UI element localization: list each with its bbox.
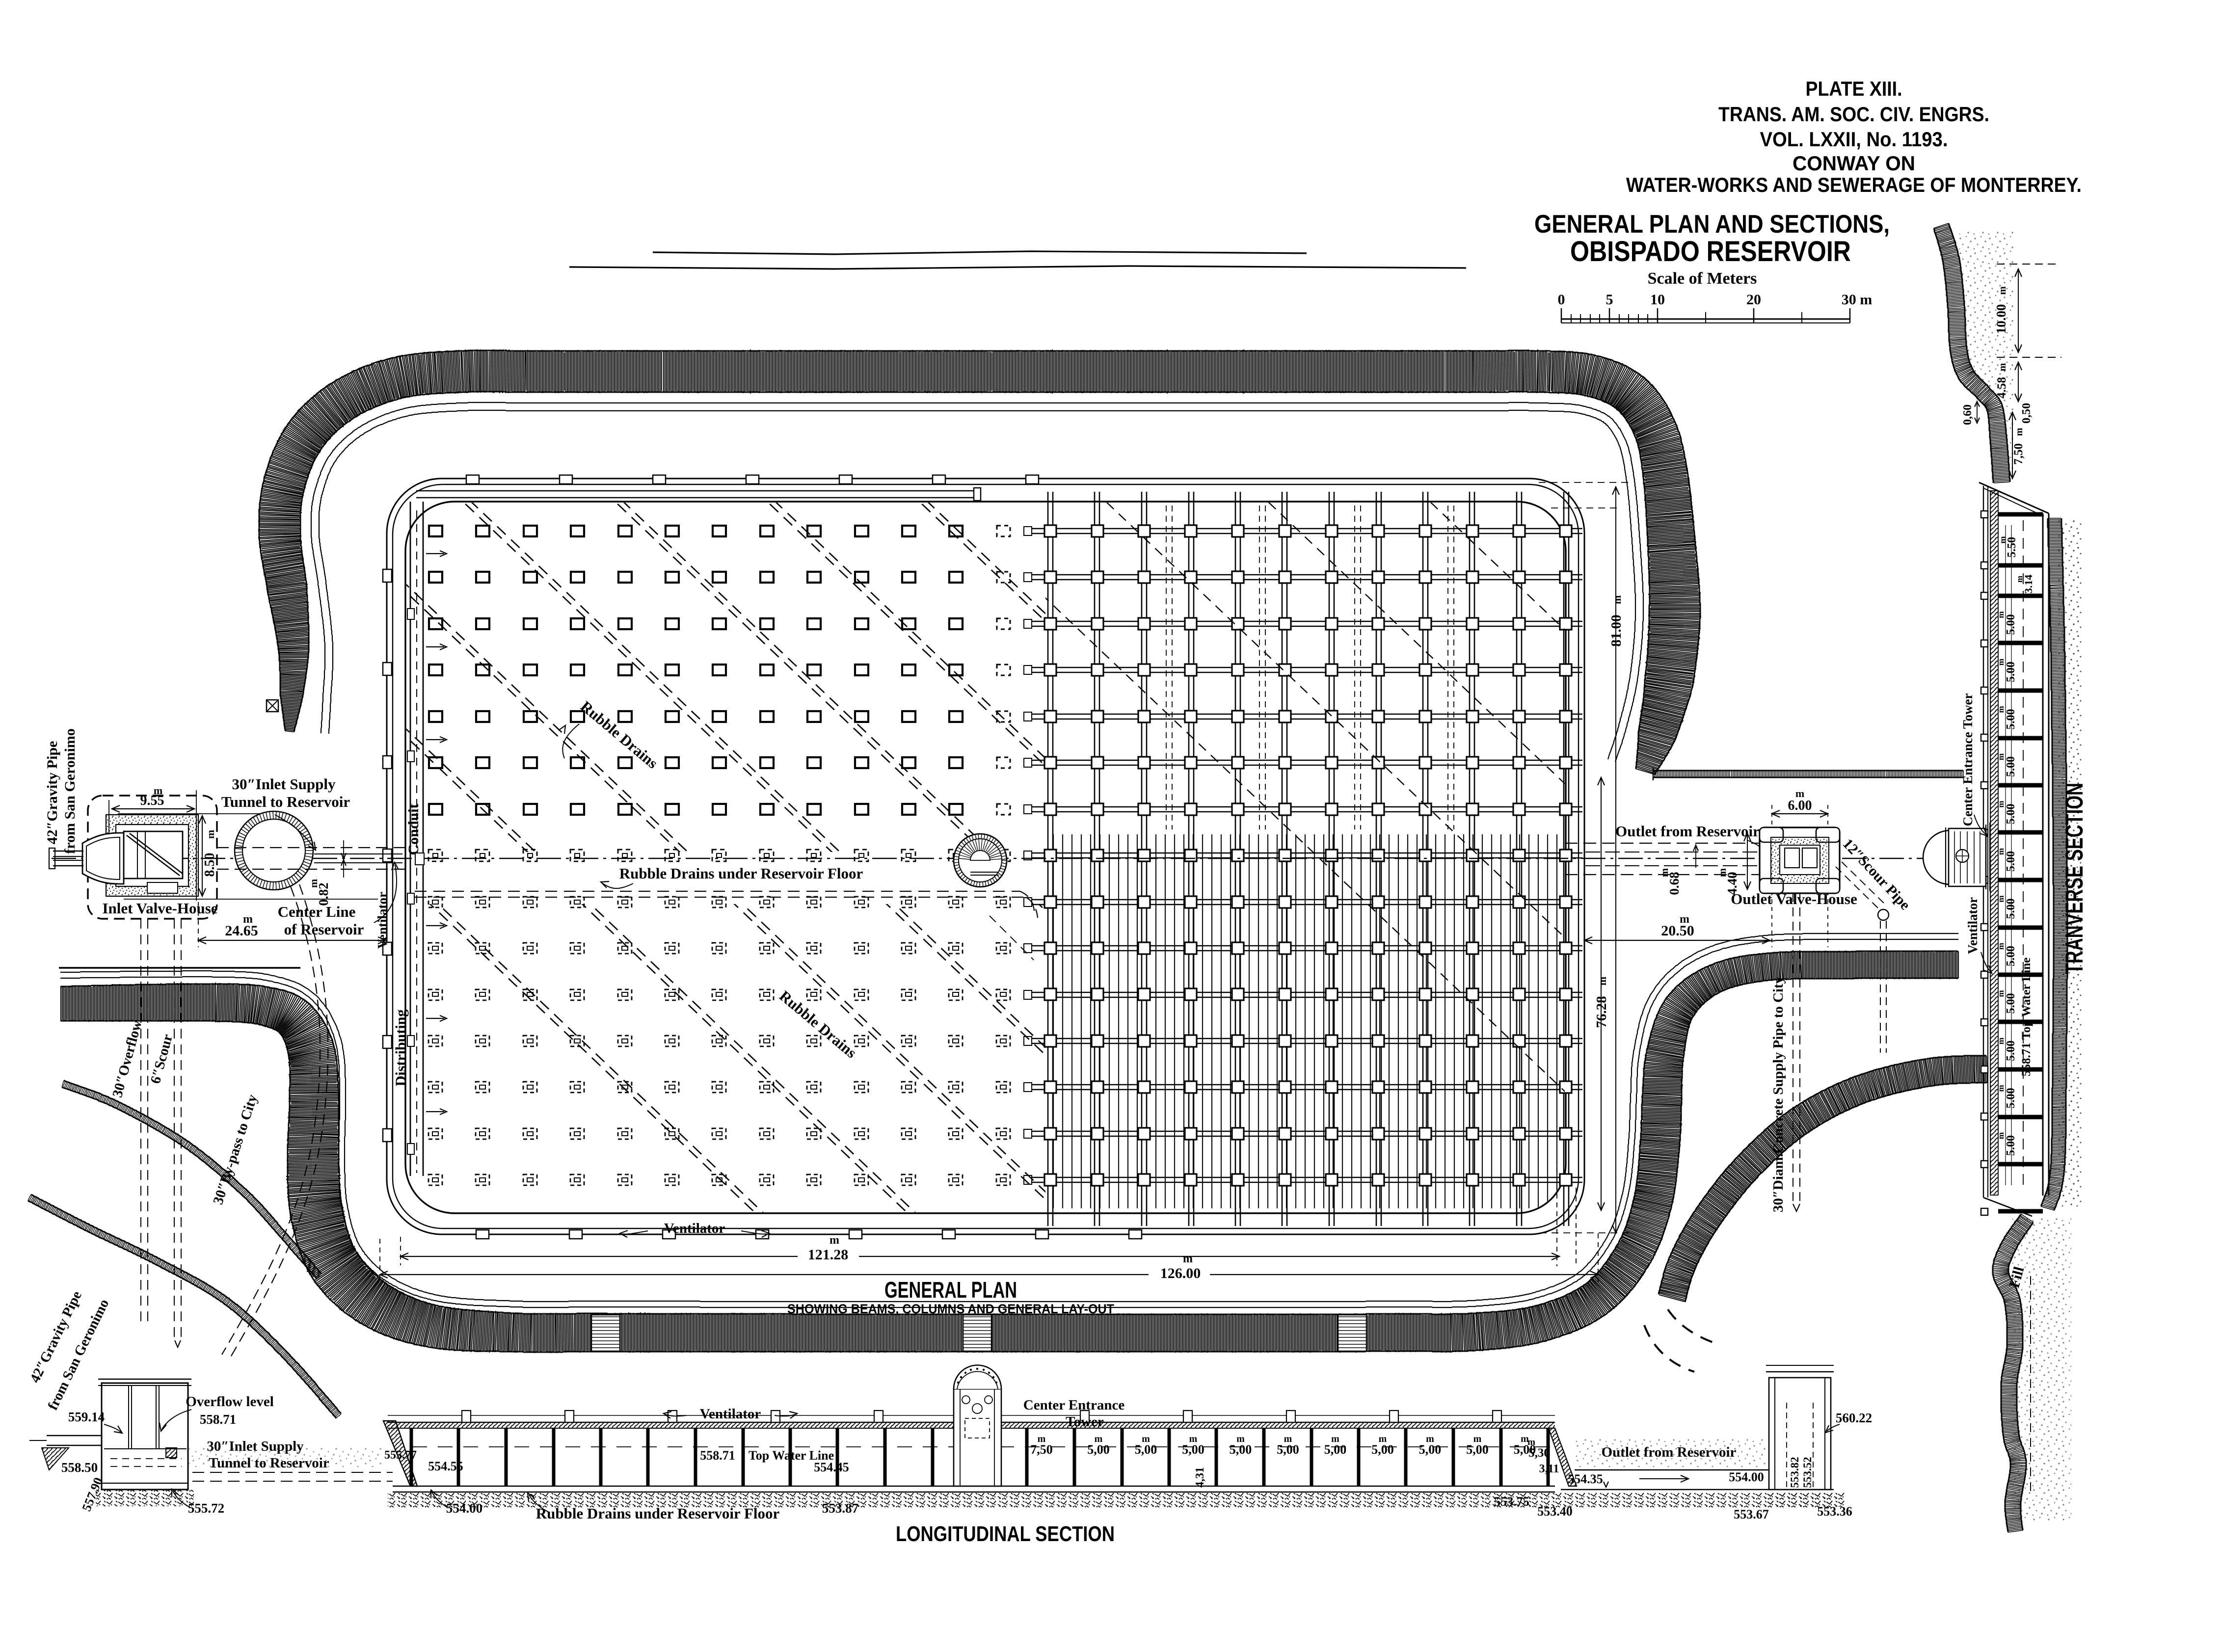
svg-text:m: m xyxy=(307,879,320,888)
svg-text:m: m xyxy=(1527,1437,1535,1447)
svg-text:Rubble Drains under Reservoir: Rubble Drains under Reservoir Floor xyxy=(536,1505,780,1522)
svg-text:Outlet Valve-House: Outlet Valve-House xyxy=(1731,890,1857,907)
svg-text:m: m xyxy=(1473,1434,1482,1444)
svg-text:4.58: 4.58 xyxy=(1995,377,2008,399)
svg-text:0,60: 0,60 xyxy=(1961,404,1974,425)
svg-text:m: m xyxy=(1716,868,1728,877)
svg-text:42″Gravity Pipe: 42″Gravity Pipe xyxy=(44,741,60,845)
svg-text:5.00: 5.00 xyxy=(2005,709,2017,730)
svg-text:TRANS. AM. SOC. CIV. ENGRS.: TRANS. AM. SOC. CIV. ENGRS. xyxy=(1718,103,1989,126)
svg-text:m: m xyxy=(154,784,162,797)
svg-text:559.14: 559.14 xyxy=(68,1410,105,1424)
svg-text:553.67: 553.67 xyxy=(1734,1507,1769,1521)
svg-text:m: m xyxy=(1596,977,1608,986)
svg-text:554.55: 554.55 xyxy=(428,1459,463,1473)
svg-text:SHOWING BEAMS, COLUMNS AND GEN: SHOWING BEAMS, COLUMNS AND GENERAL LAY-O… xyxy=(787,1302,1114,1316)
svg-text:m: m xyxy=(1183,1252,1193,1265)
svg-text:5,00: 5,00 xyxy=(1324,1442,1347,1457)
svg-text:Rubble Drains under Reservoir: Rubble Drains under Reservoir Floor xyxy=(619,865,863,882)
svg-text:5: 5 xyxy=(1606,292,1613,308)
svg-text:5.00: 5.00 xyxy=(2005,1040,2017,1061)
svg-text:m: m xyxy=(1996,943,2006,950)
svg-text:m: m xyxy=(243,913,253,926)
svg-text:0,50: 0,50 xyxy=(2020,403,2033,424)
svg-text:554.35: 554.35 xyxy=(1568,1472,1603,1486)
svg-text:5.00: 5.00 xyxy=(2005,851,2017,872)
svg-text:558.50: 558.50 xyxy=(61,1460,98,1475)
svg-text:m: m xyxy=(1189,1434,1198,1444)
svg-text:30″Inlet Supply: 30″Inlet Supply xyxy=(232,775,336,793)
svg-text:5.00: 5.00 xyxy=(2005,662,2017,682)
svg-text:Ventilator: Ventilator xyxy=(700,1406,761,1422)
svg-text:5,00: 5,00 xyxy=(1466,1442,1489,1457)
svg-text:Tunnel to Reservoir: Tunnel to Reservoir xyxy=(221,793,350,810)
svg-text:m: m xyxy=(1426,1434,1434,1444)
svg-text:5.00: 5.00 xyxy=(2005,804,2017,825)
svg-text:TRANVERSE SECTION: TRANVERSE SECTION xyxy=(2060,783,2088,974)
svg-text:m: m xyxy=(1795,787,1804,799)
svg-text:m: m xyxy=(1996,895,2006,902)
svg-text:7,50: 7,50 xyxy=(1030,1442,1053,1457)
svg-text:Distributing: Distributing xyxy=(393,1010,409,1087)
svg-text:m: m xyxy=(2015,576,2024,583)
svg-text:0: 0 xyxy=(1558,292,1565,308)
svg-text:8.50: 8.50 xyxy=(202,853,217,877)
svg-text:m: m xyxy=(1658,868,1670,877)
svg-text:Scale of Meters: Scale of Meters xyxy=(1648,269,1757,288)
svg-text:GENERAL PLAN AND SECTIONS,: GENERAL PLAN AND SECTIONS, xyxy=(1534,210,1890,239)
svg-text:76.28: 76.28 xyxy=(1594,996,1609,1028)
svg-text:10: 10 xyxy=(1650,292,1665,308)
svg-text:81.00: 81.00 xyxy=(1608,614,1624,646)
svg-text:553.52: 553.52 xyxy=(1801,1457,1814,1488)
svg-text:5,00: 5,00 xyxy=(1182,1442,1204,1457)
svg-text:WATER-WORKS AND SEWERAGE OF MO: WATER-WORKS AND SEWERAGE OF MONTERREY. xyxy=(1626,173,2082,196)
svg-text:m: m xyxy=(1236,1434,1245,1444)
svg-text:m: m xyxy=(1142,1434,1150,1444)
svg-text:5,00: 5,00 xyxy=(1087,1442,1110,1457)
svg-text:GENERAL PLAN: GENERAL PLAN xyxy=(884,1277,1017,1303)
svg-text:m: m xyxy=(1996,1132,2006,1139)
svg-text:of Reservoir: of Reservoir xyxy=(284,921,364,938)
svg-text:Ventilator: Ventilator xyxy=(1965,897,1980,954)
svg-text:5.00: 5.00 xyxy=(2005,1088,2017,1109)
svg-text:5,00: 5,00 xyxy=(1135,1442,1157,1457)
svg-text:m: m xyxy=(1996,611,2006,618)
svg-text:m: m xyxy=(1996,1085,2006,1092)
svg-text:m: m xyxy=(1996,753,2006,760)
svg-text:m: m xyxy=(830,1234,839,1247)
svg-text:553.40: 553.40 xyxy=(1537,1504,1573,1519)
svg-text:5,30: 5,30 xyxy=(1528,1446,1550,1460)
svg-text:m: m xyxy=(1095,1434,1103,1444)
svg-text:20: 20 xyxy=(1746,292,1761,308)
svg-text:m: m xyxy=(1331,1434,1339,1444)
svg-text:Outlet from Reservoir: Outlet from Reservoir xyxy=(1615,823,1760,840)
svg-text:554.45: 554.45 xyxy=(814,1460,849,1474)
svg-text:558.71: 558.71 xyxy=(200,1412,236,1427)
svg-text:m: m xyxy=(1996,990,2006,997)
svg-text:555.72: 555.72 xyxy=(188,1501,224,1516)
svg-text:558.71 Top Water Line: 558.71 Top Water Line xyxy=(2020,958,2033,1076)
svg-text:7,50: 7,50 xyxy=(2012,443,2025,465)
svg-text:m: m xyxy=(204,830,216,839)
svg-text:5.00: 5.00 xyxy=(2005,993,2017,1014)
svg-text:4,31: 4,31 xyxy=(1194,1467,1206,1488)
svg-text:m: m xyxy=(1996,286,2008,295)
svg-text:m: m xyxy=(2014,427,2025,436)
svg-text:560.22: 560.22 xyxy=(1836,1411,1872,1425)
svg-text:24.65: 24.65 xyxy=(225,923,258,939)
svg-text:553.82: 553.82 xyxy=(1789,1457,1801,1488)
svg-text:126.00: 126.00 xyxy=(1160,1265,1201,1281)
svg-text:553.75: 553.75 xyxy=(1494,1494,1529,1509)
svg-text:m: m xyxy=(1996,848,2006,855)
svg-text:5.00: 5.00 xyxy=(2005,756,2017,777)
svg-text:m: m xyxy=(1996,659,2006,666)
svg-text:Center Entrance Tower: Center Entrance Tower xyxy=(1960,693,1975,826)
svg-text:5,00: 5,00 xyxy=(1419,1442,1442,1457)
svg-text:Outlet from Reservoir: Outlet from Reservoir xyxy=(1602,1444,1737,1460)
svg-text:Center Entrance: Center Entrance xyxy=(1023,1397,1125,1413)
svg-text:558.71: 558.71 xyxy=(700,1448,735,1463)
svg-text:m: m xyxy=(1611,595,1623,604)
svg-text:5,00: 5,00 xyxy=(1277,1442,1299,1457)
svg-text:553.87: 553.87 xyxy=(822,1501,858,1516)
svg-text:m: m xyxy=(1996,1038,2006,1044)
svg-text:Overflow level: Overflow level xyxy=(186,1394,274,1410)
svg-text:5,00: 5,00 xyxy=(1371,1442,1394,1457)
svg-text:Ventilator: Ventilator xyxy=(664,1221,725,1236)
svg-text:5.00: 5.00 xyxy=(2005,946,2017,966)
svg-text:30″Diam.Concrete Supply Pipe t: 30″Diam.Concrete Supply Pipe to City xyxy=(1770,976,1786,1212)
svg-text:PLATE XIII.: PLATE XIII. xyxy=(1806,77,1902,100)
svg-text:10.00: 10.00 xyxy=(1994,304,2008,334)
svg-text:VOL. LXXII, No. 1193.: VOL. LXXII, No. 1193. xyxy=(1760,128,1948,151)
svg-text:5,00: 5,00 xyxy=(1230,1442,1252,1457)
svg-text:m: m xyxy=(1998,536,2007,544)
svg-text:553.36: 553.36 xyxy=(1817,1504,1852,1519)
svg-text:m: m xyxy=(1680,913,1689,926)
svg-text:m: m xyxy=(1379,1434,1387,1444)
svg-text:121.28: 121.28 xyxy=(808,1247,849,1263)
svg-text:554.00: 554.00 xyxy=(1729,1470,1764,1484)
svg-text:5.00: 5.00 xyxy=(2005,614,2017,635)
svg-text:Conduit: Conduit xyxy=(405,803,422,855)
svg-text:CONWAY ON: CONWAY ON xyxy=(1793,152,1915,175)
svg-text:3,11: 3,11 xyxy=(1539,1463,1559,1475)
svg-text:OBISPADO RESERVOIR: OBISPADO RESERVOIR xyxy=(1570,236,1851,267)
svg-text:5.00: 5.00 xyxy=(2005,1135,2017,1156)
svg-text:from San Geronimo: from San Geronimo xyxy=(62,728,78,854)
svg-text:m: m xyxy=(1284,1434,1292,1444)
svg-text:m: m xyxy=(1997,363,2008,371)
svg-text:Tower: Tower xyxy=(1066,1414,1104,1430)
svg-text:555.77: 555.77 xyxy=(384,1449,417,1462)
svg-text:m: m xyxy=(1996,706,2006,713)
svg-text:554.00: 554.00 xyxy=(446,1501,482,1516)
svg-text:30 m: 30 m xyxy=(1842,292,1873,308)
svg-text:Inlet Valve-House: Inlet Valve-House xyxy=(102,900,217,917)
svg-text:LONGITUDINAL SECTION: LONGITUDINAL SECTION xyxy=(896,1522,1115,1546)
svg-text:6.00: 6.00 xyxy=(1788,798,1812,813)
svg-text:m: m xyxy=(1996,800,2006,807)
svg-text:5.00: 5.00 xyxy=(2005,899,2017,919)
svg-text:m: m xyxy=(1038,1434,1046,1444)
